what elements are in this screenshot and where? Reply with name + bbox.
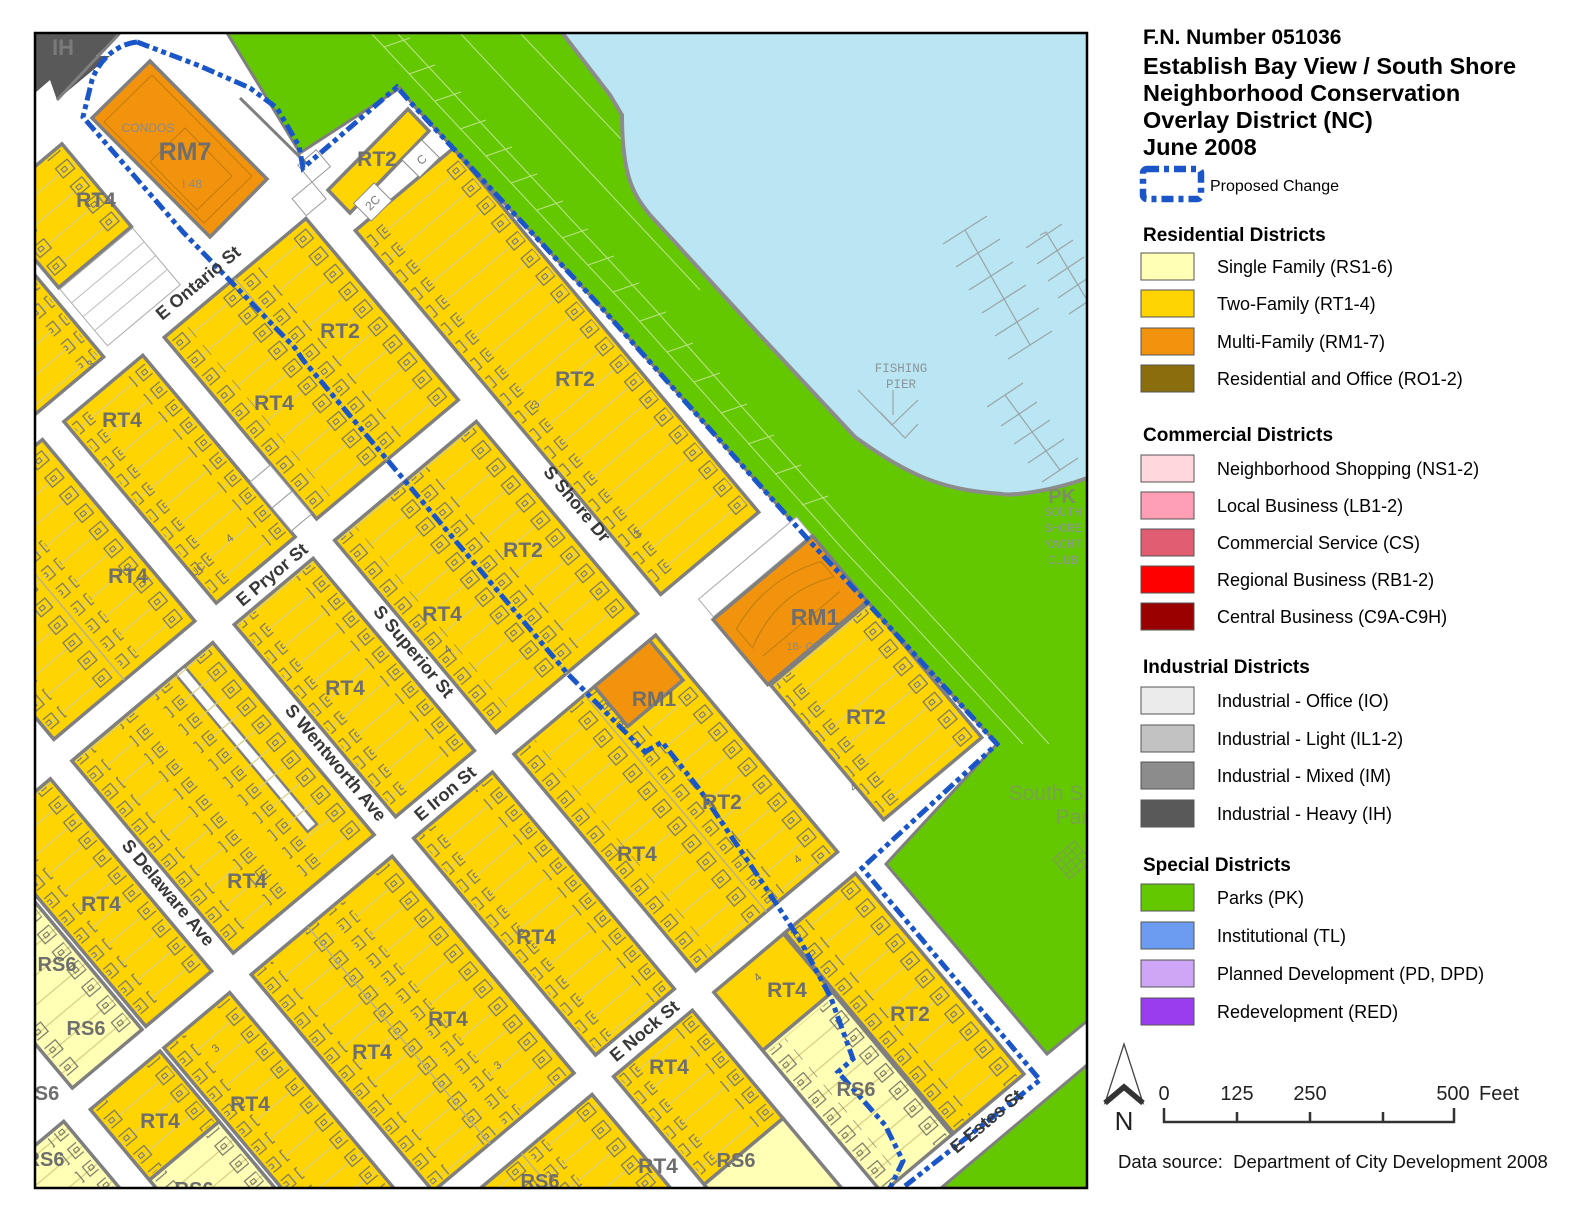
svg-text:RM1: RM1 xyxy=(632,688,677,711)
svg-text:RT4: RT4 xyxy=(140,1110,180,1133)
svg-text:Residential and Office (RO1-2): Residential and Office (RO1-2) xyxy=(1217,369,1463,389)
svg-text:I 48: I 48 xyxy=(182,177,202,191)
svg-text:SHORE: SHORE xyxy=(1044,522,1082,536)
svg-text:PK: PK xyxy=(1048,486,1076,508)
svg-text:N: N xyxy=(1115,1106,1134,1136)
svg-text:Local Business (LB1-2): Local Business (LB1-2) xyxy=(1217,496,1403,516)
svg-text:RT4: RT4 xyxy=(227,870,267,893)
svg-text:18- C: 18- C xyxy=(787,641,814,653)
svg-text:Industrial - Light (IL1-2): Industrial - Light (IL1-2) xyxy=(1217,729,1403,749)
svg-text:Redevelopment (RED): Redevelopment (RED) xyxy=(1217,1002,1398,1022)
svg-text:0: 0 xyxy=(1158,1083,1169,1105)
svg-text:Proposed Change: Proposed Change xyxy=(1210,178,1339,195)
svg-text:RT2: RT2 xyxy=(555,368,595,391)
svg-text:RT4: RT4 xyxy=(638,1155,678,1178)
svg-text:F.N. Number 051036: F.N. Number 051036 xyxy=(1143,26,1341,49)
svg-text:RT2: RT2 xyxy=(503,539,543,562)
svg-text:RS6: RS6 xyxy=(38,954,77,976)
svg-text:SOUTH: SOUTH xyxy=(1044,506,1082,520)
svg-text:CLUB: CLUB xyxy=(1048,554,1079,568)
svg-text:Multi-Family (RM1-7): Multi-Family (RM1-7) xyxy=(1217,332,1385,352)
svg-text:RT4: RT4 xyxy=(230,1093,270,1116)
svg-text:RS6: RS6 xyxy=(717,1150,756,1172)
svg-text:Planned Development (PD, DPD): Planned Development (PD, DPD) xyxy=(1217,964,1484,984)
svg-text:PIER: PIER xyxy=(886,378,917,392)
svg-text:RT4: RT4 xyxy=(428,1008,468,1031)
svg-text:IH: IH xyxy=(52,35,74,60)
svg-text:Institutional (TL): Institutional (TL) xyxy=(1217,926,1346,946)
svg-text:S6: S6 xyxy=(35,1083,59,1105)
svg-text:RT4: RT4 xyxy=(76,189,116,212)
svg-text:Commercial Service (CS): Commercial Service (CS) xyxy=(1217,533,1420,553)
svg-text:Industrial - Office (IO): Industrial - Office (IO) xyxy=(1217,691,1389,711)
svg-text:Industrial - Mixed (IM): Industrial - Mixed (IM) xyxy=(1217,766,1391,786)
svg-text:RT2: RT2 xyxy=(890,1003,930,1026)
svg-text:Regional Business (RB1-2): Regional Business (RB1-2) xyxy=(1217,570,1434,590)
svg-text:RT4: RT4 xyxy=(254,392,294,415)
svg-text:Central Business (C9A-C9H): Central Business (C9A-C9H) xyxy=(1217,607,1447,627)
svg-text:Industrial - Heavy (IH): Industrial - Heavy (IH) xyxy=(1217,804,1392,824)
svg-text:Data source: Department of Ci: Data source: Department of City Developm… xyxy=(1118,1151,1548,1172)
svg-text:RT2: RT2 xyxy=(846,706,886,729)
svg-text:Par: Par xyxy=(1056,806,1089,829)
svg-text:Neighborhood Shopping (NS1-2): Neighborhood Shopping (NS1-2) xyxy=(1217,459,1479,479)
svg-text:RT4: RT4 xyxy=(422,603,462,626)
svg-text:RS6: RS6 xyxy=(837,1079,876,1101)
svg-text:Commercial Districts: Commercial Districts xyxy=(1143,425,1333,446)
svg-text:FISHING: FISHING xyxy=(875,362,928,376)
svg-text:RT4: RT4 xyxy=(108,565,148,588)
svg-text:CONDOS: CONDOS xyxy=(122,121,175,135)
svg-text:125: 125 xyxy=(1220,1083,1253,1105)
svg-text:RM1: RM1 xyxy=(791,604,840,630)
svg-text:Industrial Districts: Industrial Districts xyxy=(1143,657,1310,678)
svg-text:250: 250 xyxy=(1293,1083,1326,1105)
svg-text:Residential Districts: Residential Districts xyxy=(1143,225,1326,246)
svg-text:Feet: Feet xyxy=(1479,1083,1519,1105)
svg-text:RT4: RT4 xyxy=(617,843,657,866)
svg-text:Parks (PK): Parks (PK) xyxy=(1217,888,1304,908)
svg-text:RT4: RT4 xyxy=(649,1056,689,1079)
svg-text:Establish Bay View / South Sho: Establish Bay View / South Shore xyxy=(1143,53,1516,79)
svg-text:RT4: RT4 xyxy=(325,677,365,700)
svg-text:South S: South S xyxy=(1009,782,1084,805)
svg-text:Two-Family (RT1-4): Two-Family (RT1-4) xyxy=(1217,294,1376,314)
svg-text:RT4: RT4 xyxy=(102,409,142,432)
svg-text:Single Family (RS1-6): Single Family (RS1-6) xyxy=(1217,257,1393,277)
svg-text:RT4: RT4 xyxy=(352,1041,392,1064)
svg-text:YACHT: YACHT xyxy=(1044,538,1082,552)
svg-text:500: 500 xyxy=(1436,1083,1469,1105)
svg-text:RT4: RT4 xyxy=(516,926,556,949)
svg-text:RT4: RT4 xyxy=(767,979,807,1002)
svg-text:RT2: RT2 xyxy=(357,148,397,171)
svg-text:Neighborhood Conservation: Neighborhood Conservation xyxy=(1143,80,1460,106)
svg-text:RT2: RT2 xyxy=(702,791,742,814)
svg-text:June 2008: June 2008 xyxy=(1143,134,1257,160)
svg-text:RM7: RM7 xyxy=(159,138,212,166)
svg-text:RT2: RT2 xyxy=(320,320,360,343)
svg-text:Overlay District (NC): Overlay District (NC) xyxy=(1143,107,1373,133)
svg-text:RS6: RS6 xyxy=(67,1018,106,1040)
svg-text:RT4: RT4 xyxy=(81,893,121,916)
svg-text:Special Districts: Special Districts xyxy=(1143,855,1291,876)
